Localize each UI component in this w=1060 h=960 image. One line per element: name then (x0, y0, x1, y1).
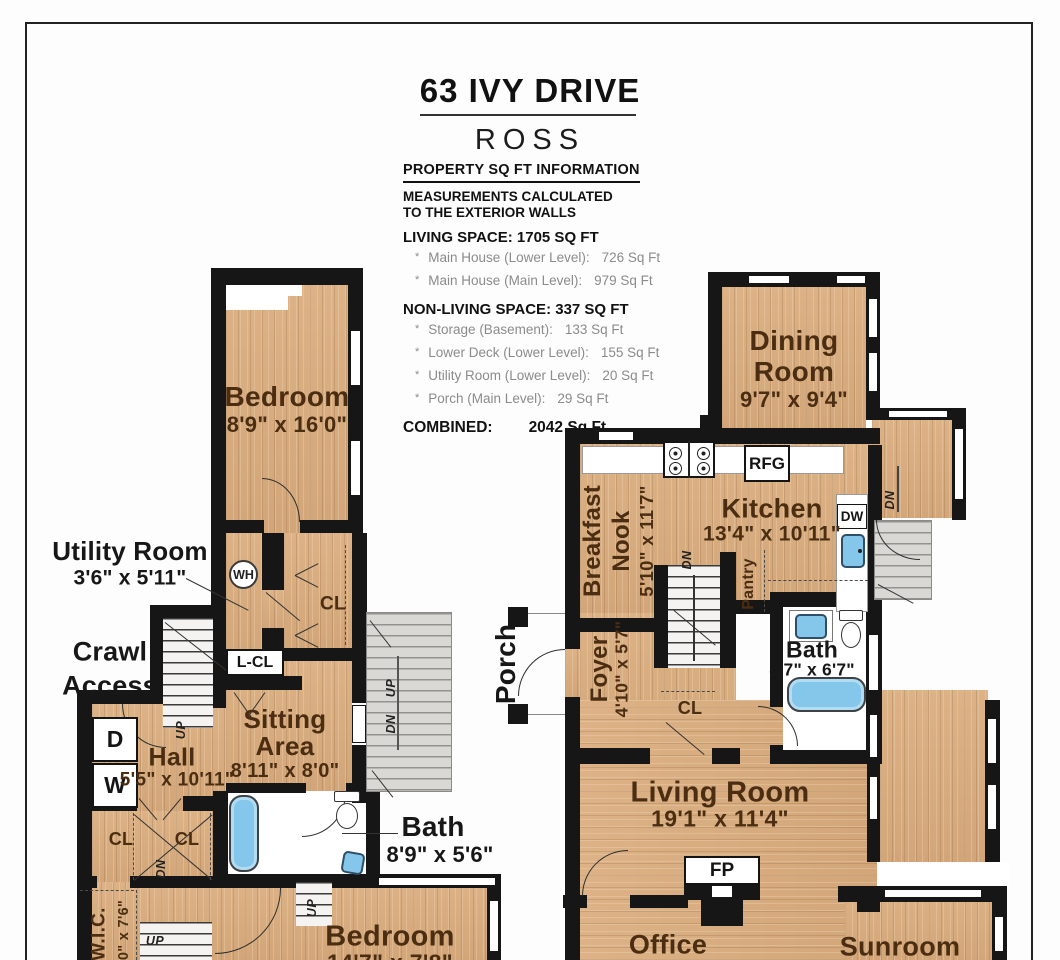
window (888, 410, 948, 418)
item-value: 20 Sq Ft (602, 365, 653, 386)
floor-utility (226, 533, 262, 661)
living-space-heading: LIVING SPACE: 1705 SQ FT (403, 229, 703, 247)
stair-marker-dn: DN (681, 550, 694, 569)
wall (262, 533, 284, 590)
room-dims-kitchen: 13'4" x 10'11" (703, 524, 841, 545)
pantry-dash (764, 550, 765, 612)
room-label-nook-2: Nook (610, 510, 634, 571)
wic-dash (136, 890, 137, 960)
closet-dash (210, 813, 211, 880)
pantry-label: Pantry (741, 558, 757, 610)
closet-label: CL (175, 830, 200, 848)
linen-closet-box: L-CL (226, 649, 284, 676)
exterior-gap (877, 862, 1010, 888)
room-label-dining-1: Dining (750, 327, 839, 355)
floor-utility-door (262, 590, 284, 628)
interior-stairs (163, 704, 213, 728)
wall (712, 748, 740, 764)
item-label: Porch (Main Level): (428, 388, 545, 409)
interior-stairs (163, 618, 213, 704)
room-dims-wic: 0" x 7'6" (117, 900, 132, 960)
window (868, 298, 878, 338)
room-label-bath-main: Bath (786, 639, 838, 662)
room-dims-foyer: 4'10" x 5'7" (613, 621, 631, 718)
bathtub (787, 677, 866, 712)
landing-marker-dn: DN (884, 490, 897, 509)
bullet: * (415, 247, 419, 268)
room-dims-hall: 5'5" x 10'11" (120, 771, 234, 790)
closet-label: CL (320, 595, 346, 614)
window (350, 330, 361, 386)
room-label-living: Living Room (631, 779, 810, 808)
bedroom-alcove (226, 285, 288, 310)
fireplace-hearth (701, 900, 743, 926)
item-label: Storage (Basement): (428, 319, 553, 340)
toilet-tank (839, 610, 863, 621)
deck-stairs (366, 612, 452, 792)
list-item: *Storage (Basement):133 Sq Ft (403, 319, 703, 342)
leader-line (342, 833, 398, 834)
item-value: 979 Sq Ft (594, 270, 653, 291)
counter-dash (768, 580, 868, 581)
bath-sink (795, 614, 827, 639)
item-label: Main House (Main Level): (428, 270, 582, 291)
page-title: 63 IVY DRIVE (330, 72, 730, 110)
room-label-bedroom-lower: Bedroom (325, 923, 454, 952)
window (884, 889, 982, 898)
water-heater-icon: WH (229, 560, 258, 589)
toilet-bowl (336, 803, 358, 829)
faucet-dot (858, 549, 862, 553)
porch-rail (528, 714, 565, 715)
bullet: * (415, 365, 419, 386)
dishwasher-box: DW (837, 504, 867, 529)
wall (563, 895, 587, 908)
closet-dash (661, 691, 715, 692)
toilet-tank (334, 791, 360, 802)
list-item: *Porch (Main Level):29 Sq Ft (403, 388, 703, 411)
item-value: 726 Sq Ft (602, 247, 661, 268)
non-living-heading: NON-LIVING SPACE: 337 SQ FT (403, 301, 703, 319)
floor-closet-upper (284, 533, 352, 648)
room-label-bath-lower: Bath (401, 813, 464, 841)
wall (565, 748, 650, 764)
window (748, 275, 790, 284)
room-label-sunroom: Sunroom (840, 934, 961, 960)
list-item: *Main House (Main Level):979 Sq Ft (403, 270, 703, 293)
room-label-foyer: Foyer (588, 636, 612, 703)
fireplace-notch (712, 886, 732, 897)
wall (565, 428, 580, 649)
wall (630, 895, 688, 908)
item-value: 29 Sq Ft (557, 388, 608, 409)
window (869, 776, 878, 820)
item-value: 155 Sq Ft (601, 342, 660, 363)
crawl-access-label-2: Access (62, 673, 158, 700)
door-opening (352, 705, 366, 743)
wall (866, 272, 880, 415)
wall (857, 886, 880, 912)
burner-icon (669, 447, 682, 460)
floor-entry-threshold (565, 649, 580, 697)
wall (211, 268, 363, 285)
window (868, 634, 879, 696)
list-item: *Main House (Lower Level):726 Sq Ft (403, 247, 703, 270)
window (868, 352, 878, 392)
room-label-kitchen: Kitchen (721, 496, 822, 523)
room-label-utility: Utility Room (52, 538, 208, 564)
stair-rail (693, 575, 695, 661)
room-label-dining-2: Room (754, 358, 835, 386)
window (954, 428, 964, 500)
closet-label: CL (109, 830, 134, 848)
title-rule (420, 114, 636, 116)
deck-stair-rail (397, 656, 399, 750)
floor-plan-page: 63 IVY DRIVE ROSS PROPERTY SQ FT INFORMA… (0, 0, 1060, 960)
deck-marker-dn: DN (385, 714, 398, 733)
sqft-info-block: MEASUREMENTS CALCULATED TO THE EXTERIOR … (403, 189, 703, 437)
wall (213, 791, 228, 874)
room-dims-bath-lower: 8'9" x 5'6" (387, 844, 494, 866)
room-label-bedroom-upper: Bedroom (225, 383, 350, 411)
wic-dash (80, 890, 134, 891)
item-label: Utility Room (Lower Level): (428, 365, 590, 386)
room-label-office: Office (629, 932, 707, 959)
window (598, 431, 634, 441)
room-label-wic: W.I.C. (90, 907, 109, 960)
room-dims-bath-main: 8'7" x 6'7" (769, 661, 855, 679)
porch-label: Porch (492, 624, 520, 704)
stair-marker-up: UP (175, 721, 188, 739)
bullet: * (415, 388, 419, 409)
refrigerator-box: RFG (744, 445, 790, 482)
fireplace-box: FP (684, 856, 760, 885)
crawl-access-label-1: Crawl (73, 639, 148, 666)
bullet: * (415, 342, 419, 363)
burner-icon (697, 447, 710, 460)
item-label: Lower Deck (Lower Level): (428, 342, 589, 363)
room-label-nook-1: Breakfast (581, 485, 605, 597)
toilet-bowl (841, 622, 861, 648)
porch-rail (528, 613, 565, 614)
room-dims-utility: 3'6" x 5'11" (74, 568, 187, 589)
wall (770, 607, 783, 707)
room-dims-bedroom-lower: 14'7" x 7'8" (327, 952, 453, 960)
wall (77, 876, 97, 888)
item-value: 133 Sq Ft (565, 319, 624, 340)
bath-sink (340, 850, 365, 875)
bathtub (229, 795, 259, 872)
window (489, 900, 499, 952)
refrigerator-label: RFG (749, 454, 785, 474)
linen-closet-label: L-CL (237, 654, 273, 672)
room-dims-sitting: 8'11" x 8'0" (231, 761, 340, 781)
wall (720, 552, 736, 668)
room-dims-dining: 9'7" x 9'4" (740, 389, 848, 411)
wall (284, 648, 352, 661)
wall (226, 676, 302, 690)
page-subtitle: ROSS (330, 124, 730, 157)
item-label: Main House (Lower Level): (428, 247, 589, 268)
window (987, 784, 997, 830)
window (869, 714, 878, 758)
wall (352, 533, 367, 703)
dishwasher-label: DW (841, 509, 864, 524)
closet-label: CL (678, 699, 703, 717)
list-item: *Utility Room (Lower Level):20 Sq Ft (403, 365, 703, 388)
wall (150, 605, 226, 618)
floor-side-deck (880, 690, 988, 862)
stair-marker-up: UP (146, 935, 164, 948)
burner-icon (669, 462, 682, 475)
room-label-sitting-2: Area (255, 733, 314, 759)
dryer-box: D (92, 717, 138, 762)
bullet: * (415, 270, 419, 291)
stair-marker-up: UP (306, 899, 319, 917)
room-label-sitting-1: Sitting (244, 706, 327, 732)
landing-line (897, 466, 899, 512)
water-heater-label: WH (233, 568, 254, 582)
wall (300, 520, 352, 533)
wall (708, 272, 722, 434)
list-item: *Lower Deck (Lower Level):155 Sq Ft (403, 342, 703, 365)
stair-marker-dn: DN (155, 859, 168, 878)
stove-divider (688, 441, 690, 478)
deck-marker-up: UP (385, 679, 398, 697)
measure-note-2: TO THE EXTERIOR WALLS (403, 205, 703, 221)
combined-label: COMBINED: (403, 419, 493, 437)
porch-post (508, 704, 528, 724)
sqft-section-title: PROPERTY SQ FT INFORMATION (403, 162, 640, 183)
wall (130, 876, 213, 888)
window (994, 916, 1004, 952)
dryer-label: D (107, 726, 124, 753)
room-dims-living: 19'1" x 11'4" (651, 808, 789, 831)
window (987, 718, 997, 764)
room-dims-bedroom-upper: 8'9" x 16'0" (227, 414, 348, 436)
fireplace-label: FP (710, 860, 734, 882)
burner-icon (697, 462, 710, 475)
window (378, 877, 496, 886)
window (350, 440, 361, 496)
wall (226, 783, 306, 793)
room-dims-nook: 5'10" x 11'7" (638, 485, 657, 597)
bullet: * (415, 319, 419, 340)
room-label-hall: Hall (148, 746, 195, 771)
wall (226, 520, 264, 533)
measure-note-1: MEASUREMENTS CALCULATED (403, 189, 703, 205)
bedroom-alcove-step (288, 285, 302, 296)
window (836, 275, 866, 284)
wall (565, 770, 580, 960)
wall (770, 750, 882, 764)
